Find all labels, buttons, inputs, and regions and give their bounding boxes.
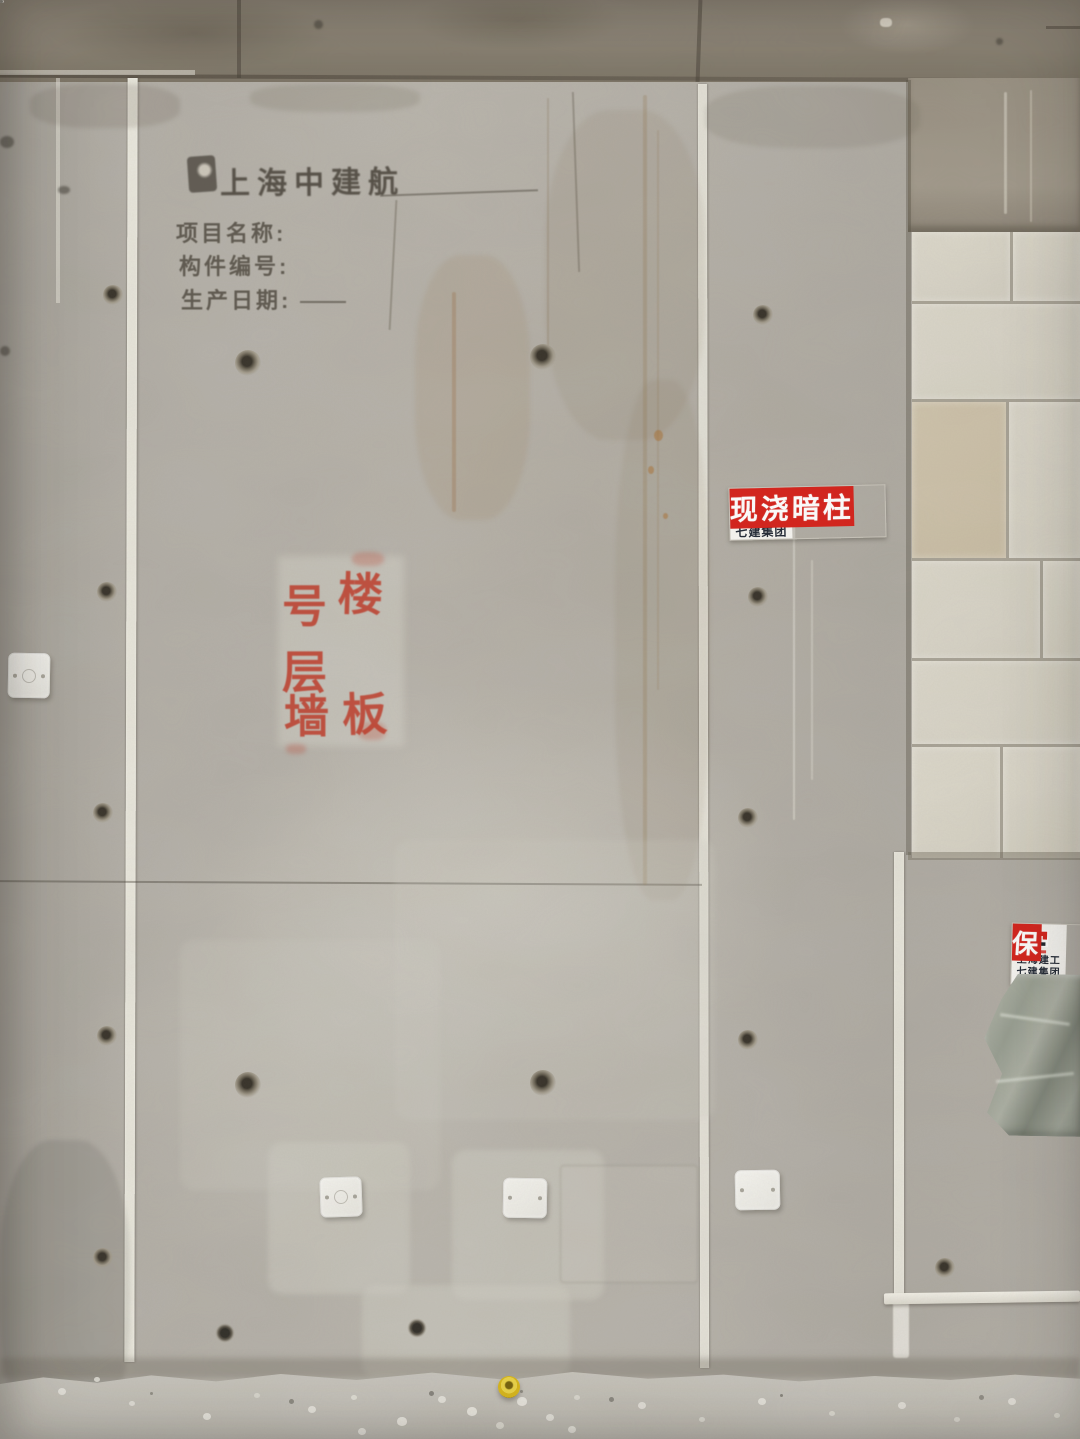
stencil-char-hao: 号 xyxy=(282,570,327,635)
screw xyxy=(13,673,17,677)
sign-label: 现浇暗柱 xyxy=(730,486,854,529)
ceiling-formwork-joint xyxy=(1046,26,1080,29)
tie-hole xyxy=(935,1258,955,1278)
screw xyxy=(538,1196,542,1200)
beam-streak xyxy=(1030,90,1032,222)
stamp-logo xyxy=(187,155,217,193)
panel-joint-strip-right xyxy=(894,852,904,1300)
sign-label-panel: 保 xyxy=(1012,923,1042,961)
tie-hole xyxy=(530,1070,556,1096)
aac-block xyxy=(1009,402,1080,558)
tie-hole xyxy=(407,1318,427,1338)
stain xyxy=(250,84,420,112)
screw xyxy=(41,674,45,678)
ceiling-chip xyxy=(880,18,892,27)
stain xyxy=(615,380,710,900)
stamp-project-label: 项目名称: xyxy=(176,216,286,248)
panel-joint-strip-left xyxy=(124,78,137,1362)
yellow-pipe-cap xyxy=(498,1376,520,1398)
stencil-char-lou: 楼 xyxy=(337,557,384,624)
ceiling-anchor-dot xyxy=(314,20,323,29)
rust-spot xyxy=(663,513,668,519)
masonry-bottom-joint xyxy=(908,852,1080,860)
construction-wall-photo: 上海中建航 项目名称: 构件编号: 生产日期: 号 楼 层 墙 板 上海建工 七… xyxy=(0,0,1080,1439)
stamp-date-label: 生产日期: xyxy=(181,283,291,315)
rust-spot xyxy=(654,430,663,441)
hairline-crack xyxy=(389,200,398,330)
tie-hole xyxy=(235,350,261,376)
screw xyxy=(325,1195,329,1199)
edge-smudge xyxy=(0,346,10,356)
screw xyxy=(740,1188,744,1192)
aac-block xyxy=(912,747,1000,858)
tie-hole xyxy=(97,1026,117,1046)
rust-stain xyxy=(415,255,530,520)
screw xyxy=(353,1194,357,1198)
tie-hole xyxy=(738,808,758,828)
ceiling-formwork-joint xyxy=(237,0,241,78)
aac-block xyxy=(912,402,1006,558)
tie-hole xyxy=(93,1248,113,1268)
column-masonry-groove xyxy=(906,80,911,855)
aac-block xyxy=(912,232,1010,301)
sign-label-partial: 保 xyxy=(1011,924,1042,962)
knockout-circle xyxy=(334,1190,348,1204)
junction-box-cover xyxy=(319,1176,362,1217)
edge-smudge xyxy=(0,136,14,148)
aac-block xyxy=(912,561,1040,658)
wall-floor-junction-shadow xyxy=(0,1358,1080,1378)
beam-streak xyxy=(1004,92,1007,214)
wall-smudge xyxy=(58,186,70,194)
rust-streak xyxy=(657,130,659,690)
tie-hole xyxy=(738,1030,758,1050)
caulk-drip xyxy=(893,1300,909,1358)
ceiling-anchor-dot xyxy=(996,38,1003,45)
screw xyxy=(771,1188,775,1192)
concrete-beam xyxy=(908,78,1080,232)
rust-streak xyxy=(643,95,647,885)
tie-hole xyxy=(748,587,768,607)
tie-hole xyxy=(93,803,113,823)
stencil-char-qiang: 墙 xyxy=(284,680,329,745)
knockout-circle xyxy=(22,668,36,682)
red-overspray xyxy=(358,722,386,740)
tie-hole xyxy=(97,582,117,602)
rust-spot xyxy=(648,466,654,474)
stamp-company-name: 上海中建航 xyxy=(220,157,405,203)
junction-box-cover xyxy=(503,1178,548,1219)
masonry-block-wall xyxy=(912,232,1080,858)
rust-streak xyxy=(452,292,456,512)
sign-label-panel: 现浇暗柱 xyxy=(729,486,854,529)
tie-hole xyxy=(235,1072,261,1098)
stain xyxy=(30,84,180,128)
red-overspray xyxy=(352,552,384,566)
tie-hole xyxy=(753,305,773,325)
column-sign: 上海建工 七建集团 现浇暗柱 xyxy=(728,484,886,541)
white-conduit-pipe xyxy=(884,1291,1080,1305)
stain xyxy=(705,86,920,148)
rust-streak xyxy=(547,98,549,348)
junction-box-cover xyxy=(735,1170,781,1211)
aac-block xyxy=(1013,232,1080,301)
aac-block xyxy=(1043,561,1080,658)
screw xyxy=(508,1196,512,1200)
stamp-date-underscore xyxy=(300,301,346,303)
red-overspray xyxy=(286,744,306,754)
tie-hole xyxy=(103,285,123,305)
top-caulk-line xyxy=(0,70,195,75)
metal-sheet-patch xyxy=(981,973,1080,1137)
stamp-component-label: 构件编号: xyxy=(179,249,289,281)
floor-debris-dark xyxy=(0,0,3,3)
junction-box-cover xyxy=(8,653,51,699)
aac-block xyxy=(912,304,1080,399)
tie-hole xyxy=(530,344,556,370)
aac-block xyxy=(1003,747,1080,858)
plaster-patch-outline xyxy=(560,1165,698,1283)
light-drip xyxy=(793,520,795,820)
tie-hole xyxy=(215,1323,235,1343)
light-drip xyxy=(811,560,813,780)
aac-block xyxy=(912,661,1080,744)
concrete-floor xyxy=(0,1372,1080,1439)
